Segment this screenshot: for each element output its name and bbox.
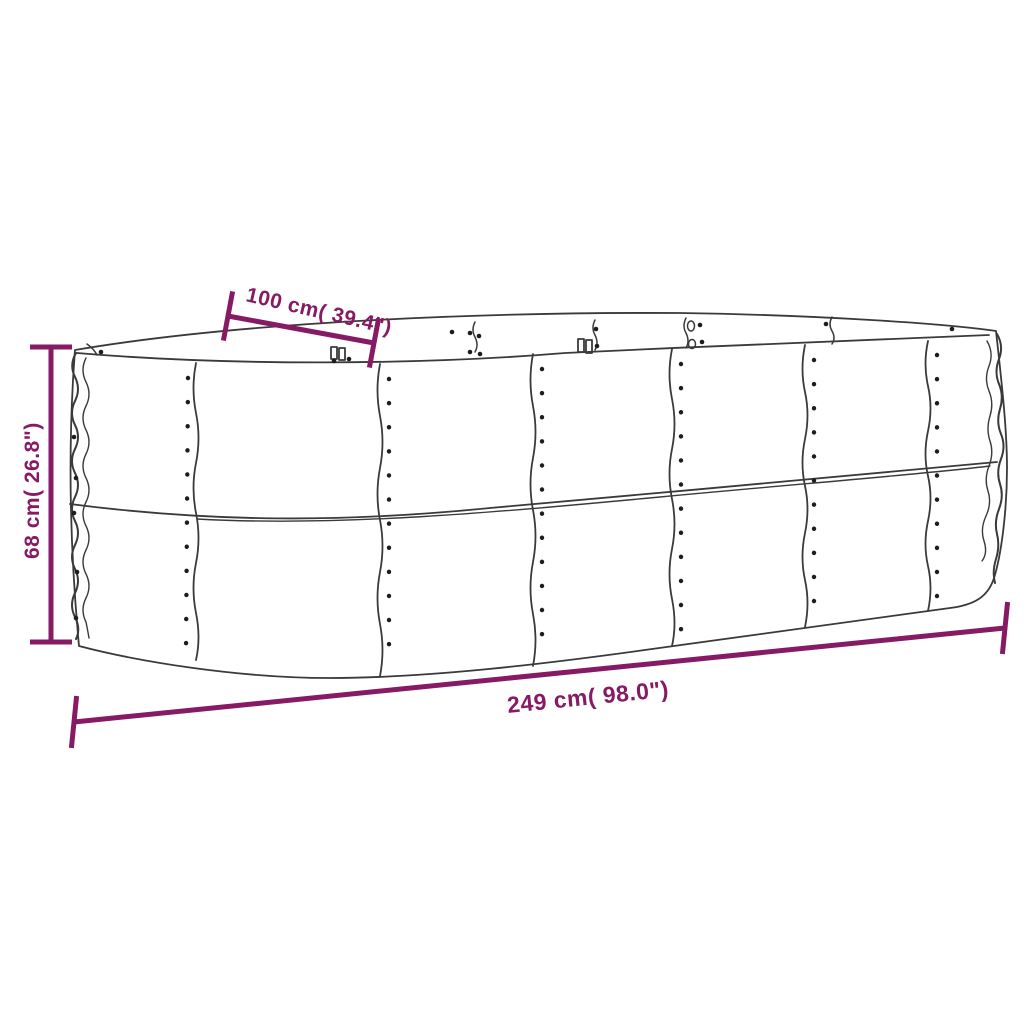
panel-seam-1: [194, 363, 199, 660]
planter-outline: [71, 313, 1007, 678]
rivet-dot: [75, 570, 80, 575]
diagram-canvas: 100 cm( 39.4") 68 cm( 26.8") 249 cm( 98.…: [0, 0, 1024, 1024]
rivet-dot: [478, 352, 483, 357]
rivet-dot: [594, 327, 599, 332]
rim-rivet-dots: [72, 322, 955, 621]
rivet-dot: [450, 330, 455, 335]
planter-drawing: [70, 313, 1007, 678]
panel-seam-2: [378, 364, 383, 676]
panel-rivet-columns: [186, 355, 937, 666]
rivet-dot: [99, 350, 104, 355]
length-dimension-cap-left: [71, 696, 76, 748]
rivet-dot: [74, 476, 79, 481]
rivet-dot: [824, 322, 829, 327]
bracket-1-right: [339, 348, 345, 360]
product-dimension-diagram: 100 cm( 39.4") 68 cm( 26.8") 249 cm( 98.…: [0, 0, 1024, 1024]
length-dimension-label: 249 cm( 98.0"): [506, 676, 670, 718]
rivet-dot: [950, 327, 955, 332]
left-corrugation-inner: [83, 358, 89, 638]
rivet-dot: [74, 616, 79, 621]
height-dimension-label: 68 cm( 26.8"): [21, 422, 44, 559]
rivet-dot: [347, 357, 352, 362]
rim-seam-1: [473, 322, 477, 352]
panel-seam-5: [803, 345, 808, 627]
bracket-1-left: [331, 347, 337, 359]
rivet-dot: [700, 340, 705, 345]
rivet-dot: [698, 323, 703, 328]
rim-seam-3: [684, 318, 688, 348]
rivet-dot: [595, 344, 600, 349]
rim-hole-1: [688, 321, 695, 331]
rivet-dot: [332, 359, 337, 364]
rivet-dot: [72, 511, 77, 516]
rivet-dot: [72, 435, 77, 440]
panel-seam-6: [926, 341, 931, 611]
length-dimension-cap-right: [1002, 602, 1007, 654]
panel-seam-3: [531, 354, 536, 666]
bracket-2-left: [578, 339, 584, 352]
panel-seam-4: [670, 349, 675, 646]
rivet-dot: [477, 334, 482, 339]
rim-seam-4: [830, 317, 834, 344]
rivet-dot: [468, 331, 473, 336]
right-corrugation-inner: [982, 341, 992, 561]
rivet-dot: [468, 350, 473, 355]
